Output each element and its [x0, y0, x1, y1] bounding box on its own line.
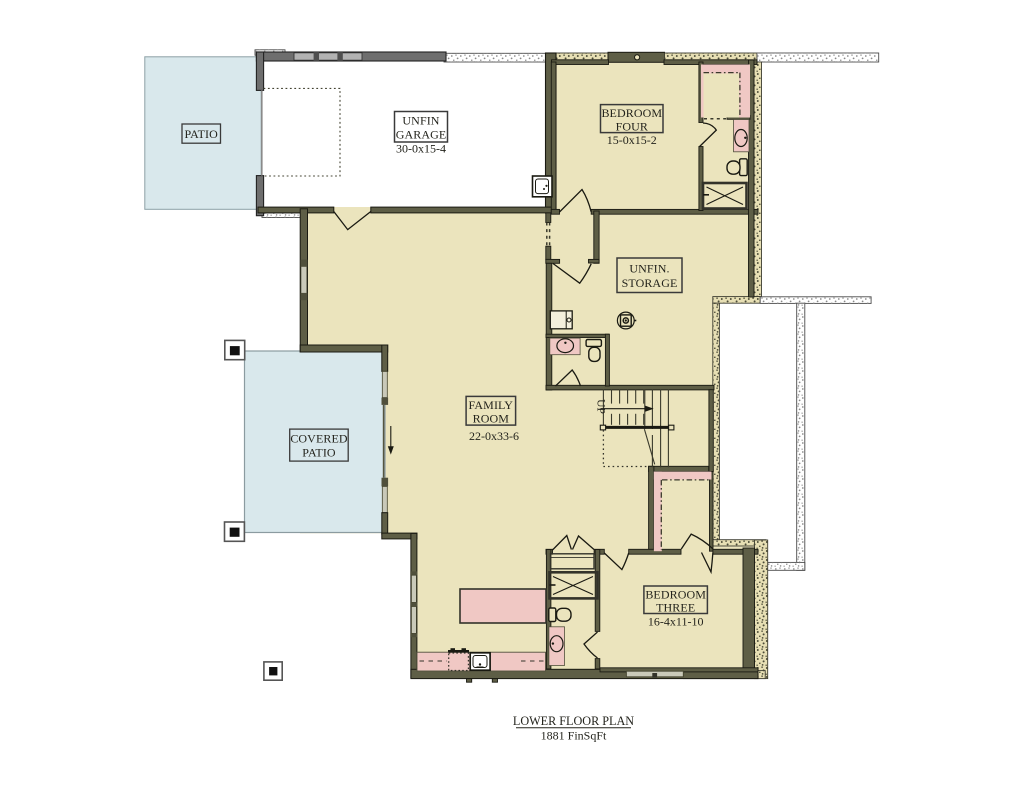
- svg-text:15-0x15-2: 15-0x15-2: [607, 133, 657, 147]
- svg-text:BEDROOM: BEDROOM: [601, 106, 662, 120]
- svg-text:FOUR: FOUR: [616, 120, 648, 134]
- svg-text:30-0x15-4: 30-0x15-4: [396, 142, 446, 156]
- svg-text:UNFIN: UNFIN: [402, 114, 439, 128]
- svg-text:BEDROOM: BEDROOM: [645, 588, 706, 602]
- svg-text:FAMILY: FAMILY: [469, 398, 514, 412]
- svg-text:PATIO: PATIO: [302, 446, 336, 460]
- svg-text:UNFIN.: UNFIN.: [629, 262, 669, 276]
- svg-text:GARAGE: GARAGE: [396, 128, 447, 142]
- svg-text:PATIO: PATIO: [184, 127, 218, 141]
- svg-text:LOWER FLOOR PLAN: LOWER FLOOR PLAN: [513, 714, 634, 728]
- svg-text:1881 FinSqFt: 1881 FinSqFt: [541, 729, 607, 743]
- svg-text:16-4x11-10: 16-4x11-10: [648, 615, 704, 629]
- svg-text:COVERED: COVERED: [290, 432, 348, 446]
- svg-text:ROOM: ROOM: [473, 412, 510, 426]
- svg-text:UP: UP: [595, 399, 607, 414]
- svg-text:THREE: THREE: [656, 601, 695, 615]
- svg-text:22-0x33-6: 22-0x33-6: [469, 429, 519, 443]
- svg-text:STORAGE: STORAGE: [622, 276, 678, 290]
